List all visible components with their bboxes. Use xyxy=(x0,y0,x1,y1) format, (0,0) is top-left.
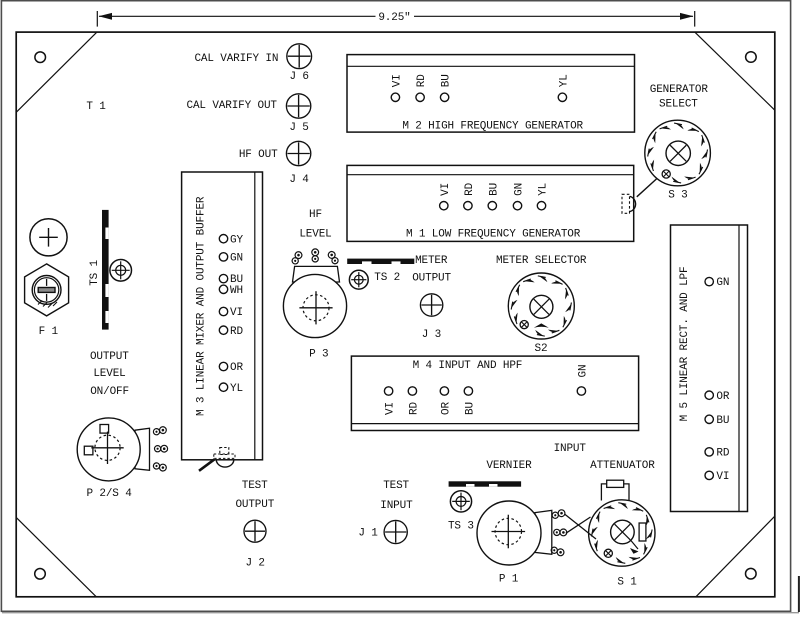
svg-text:TEST: TEST xyxy=(242,480,268,492)
svg-text:P 1: P 1 xyxy=(499,574,519,586)
svg-text:S2: S2 xyxy=(535,343,548,355)
svg-text:VI: VI xyxy=(391,74,403,87)
svg-text:CAL VARIFY IN: CAL VARIFY IN xyxy=(194,53,278,65)
svg-text:J 1: J 1 xyxy=(358,528,378,540)
svg-text:TS 1: TS 1 xyxy=(89,259,101,285)
svg-text:METER: METER xyxy=(415,255,448,267)
svg-text:INPUT: INPUT xyxy=(380,500,413,512)
svg-text:RD: RD xyxy=(408,402,420,415)
svg-text:SELECT: SELECT xyxy=(659,98,698,110)
svg-text:GN: GN xyxy=(514,183,526,196)
svg-text:TS 2: TS 2 xyxy=(374,272,400,284)
svg-text:OUTPUT: OUTPUT xyxy=(235,499,274,511)
svg-text:RD: RD xyxy=(464,182,476,195)
svg-text:M 4 INPUT AND HPF: M 4 INPUT AND HPF xyxy=(413,360,523,372)
svg-text:BU: BU xyxy=(488,183,500,196)
svg-text:YL: YL xyxy=(538,183,550,196)
svg-text:RD: RD xyxy=(716,448,729,460)
svg-text:HF OUT: HF OUT xyxy=(239,149,278,161)
svg-text:S 3: S 3 xyxy=(668,190,687,202)
svg-text:OUTPUT: OUTPUT xyxy=(412,272,451,284)
svg-text:RD: RD xyxy=(230,326,243,338)
svg-text:GN: GN xyxy=(716,277,729,289)
svg-text:LEVEL: LEVEL xyxy=(299,229,331,241)
svg-text:VI: VI xyxy=(230,307,243,319)
svg-text:P 2/S 4: P 2/S 4 xyxy=(87,488,133,500)
svg-text:J 6: J 6 xyxy=(290,71,309,83)
svg-text:OR: OR xyxy=(440,402,452,415)
svg-text:F 1: F 1 xyxy=(39,326,59,338)
svg-text:INPUT: INPUT xyxy=(554,443,587,455)
svg-text:LEVEL: LEVEL xyxy=(93,368,125,380)
svg-text:J 4: J 4 xyxy=(289,174,309,186)
svg-text:WH: WH xyxy=(230,285,243,297)
svg-text:GENERATOR: GENERATOR xyxy=(650,84,709,96)
svg-text:M 1 LOW FREQUENCY GENERATOR: M 1 LOW FREQUENCY GENERATOR xyxy=(406,229,581,241)
svg-text:VI: VI xyxy=(385,402,397,415)
svg-text:T 1: T 1 xyxy=(86,101,106,113)
svg-text:HF: HF xyxy=(309,209,322,221)
svg-text:TEST: TEST xyxy=(383,480,409,492)
svg-text:P 3: P 3 xyxy=(309,348,328,360)
svg-text:RD: RD xyxy=(416,74,428,87)
svg-text:OR: OR xyxy=(716,391,729,403)
svg-text:METER SELECTOR: METER SELECTOR xyxy=(496,255,587,267)
svg-text:YL: YL xyxy=(230,383,243,395)
svg-text:M 3 LINEAR MIXER AND OUTPUT BU: M 3 LINEAR MIXER AND OUTPUT BUFFER xyxy=(195,196,207,416)
svg-text:J 3: J 3 xyxy=(422,329,441,341)
svg-text:ATTENUATOR: ATTENUATOR xyxy=(590,460,655,472)
svg-text:M 2 HIGH FREQUENCY GENERATOR: M 2 HIGH FREQUENCY GENERATOR xyxy=(402,120,583,132)
svg-text:S 1: S 1 xyxy=(617,577,637,589)
svg-text:GN: GN xyxy=(577,365,589,378)
svg-text:VI: VI xyxy=(440,183,452,196)
svg-text:CAL VARIFY OUT: CAL VARIFY OUT xyxy=(187,100,278,112)
svg-text:GY: GY xyxy=(230,234,243,246)
svg-text:M 5 LINEAR RECT. AND LPF: M 5 LINEAR RECT. AND LPF xyxy=(679,267,691,422)
svg-text:J 2: J 2 xyxy=(246,558,265,570)
svg-text:OUTPUT: OUTPUT xyxy=(90,351,129,363)
svg-text:YL: YL xyxy=(558,74,570,87)
svg-text:BU: BU xyxy=(464,402,476,415)
svg-text:BU: BU xyxy=(716,415,729,427)
svg-text:TS 3: TS 3 xyxy=(448,521,474,533)
svg-text:VERNIER: VERNIER xyxy=(486,460,532,472)
svg-text:ON/OFF: ON/OFF xyxy=(90,386,129,398)
svg-text:9.25": 9.25" xyxy=(378,12,410,24)
svg-text:BU: BU xyxy=(441,74,453,87)
svg-text:VI: VI xyxy=(716,471,729,483)
svg-text:J 5: J 5 xyxy=(289,122,308,134)
svg-text:OR: OR xyxy=(230,362,243,374)
svg-text:GN: GN xyxy=(230,253,243,265)
